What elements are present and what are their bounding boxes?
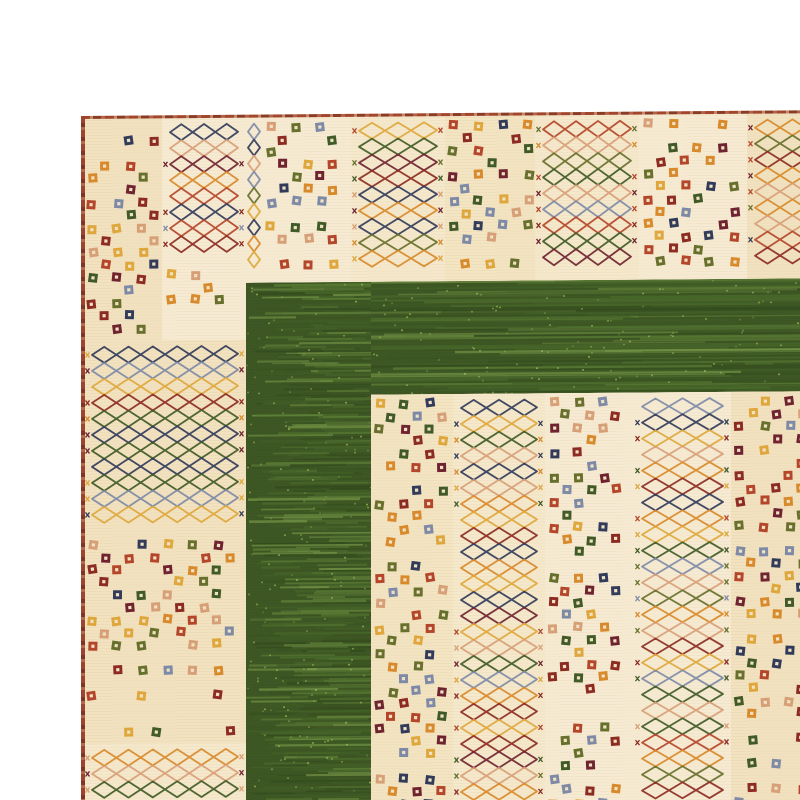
pattern-svg [84, 118, 162, 341]
pattern-svg [445, 115, 535, 281]
rug-pattern-block-lattice [246, 118, 262, 283]
pattern-svg [246, 282, 371, 800]
pattern-svg [535, 115, 639, 281]
rug-pattern-block-lattice [453, 393, 545, 800]
rug-pattern-block-lattice [351, 116, 445, 282]
pattern-svg [747, 113, 800, 279]
rug-edge-left-selvage [81, 116, 85, 800]
rug-pattern-block-dots [371, 394, 453, 800]
photo-background [0, 0, 800, 800]
rug-pattern-block-lattice [535, 115, 639, 281]
rug-pattern-block-dots [262, 117, 351, 283]
rug-pattern-block-dots [639, 114, 747, 280]
rug-pattern-block-dots [731, 391, 800, 800]
rug [81, 110, 800, 800]
rug-pattern-block-dots [445, 115, 535, 281]
rug-pattern-block-lattice [84, 743, 246, 800]
rug-pattern-block-dots [162, 265, 246, 341]
rug-green-band [246, 282, 371, 800]
pattern-svg [639, 114, 747, 280]
pattern-svg [545, 393, 634, 800]
rug-pattern-block-lattice [634, 392, 731, 800]
pattern-svg [262, 117, 351, 283]
rug-pattern-block-dots [84, 535, 246, 744]
pattern-svg [351, 116, 445, 282]
pattern-svg [371, 394, 453, 800]
pattern-svg [84, 340, 246, 536]
rug-pattern-block-dots [84, 118, 162, 341]
pattern-svg [162, 265, 246, 341]
pattern-svg [453, 393, 545, 800]
rug-pattern-block-dots [545, 393, 634, 800]
pattern-svg [246, 118, 262, 283]
rug-pattern-block-lattice [84, 340, 246, 536]
pattern-svg [634, 392, 731, 800]
pattern-svg [84, 535, 246, 744]
rug-pattern-block-lattice [162, 118, 246, 266]
pattern-svg [84, 743, 246, 800]
pattern-svg [162, 118, 246, 266]
rug-pattern-block-lattice [747, 113, 800, 279]
pattern-svg [731, 391, 800, 800]
